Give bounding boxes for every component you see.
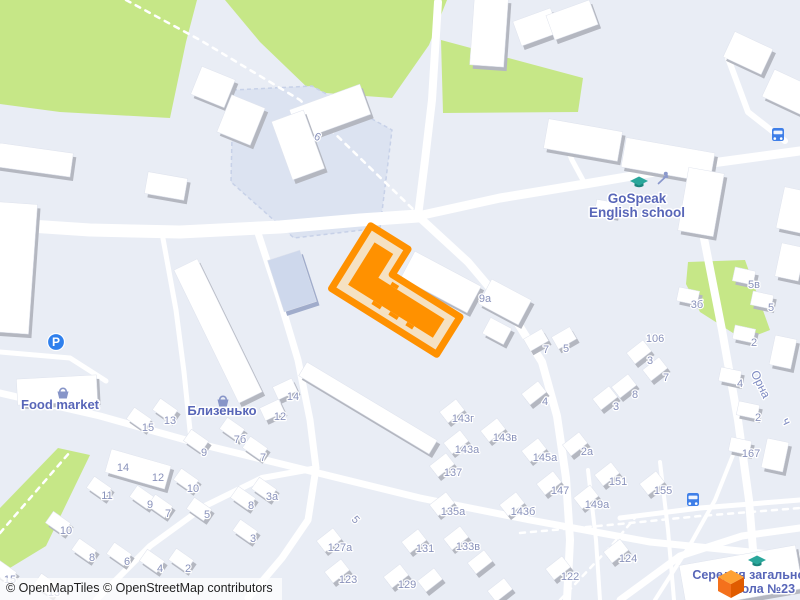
attribution-text[interactable]: © OpenMapTiles © OpenStreetMap contribut… bbox=[6, 581, 273, 595]
house-number-label: 3 bbox=[250, 533, 256, 545]
house-number-label: 2 bbox=[755, 412, 761, 424]
house-number-label: 13 bbox=[164, 415, 176, 427]
house-number-label: 10 bbox=[60, 525, 72, 537]
house-number-label: 149а bbox=[585, 499, 610, 511]
house-number-label: 143г bbox=[452, 413, 474, 425]
house-number-label: 5 bbox=[563, 343, 569, 355]
house-number-label: 4 bbox=[542, 396, 548, 408]
house-number-label: 10 bbox=[187, 483, 199, 495]
house-number-label: 137 bbox=[444, 467, 462, 479]
house-number-label: 3 bbox=[647, 355, 653, 367]
house-number-label: 4 bbox=[157, 563, 163, 575]
house-number-label: 5в bbox=[748, 279, 760, 291]
house-number-label: 6 bbox=[124, 556, 130, 568]
house-number-label: 5 bbox=[768, 302, 774, 314]
house-number-label: 9 bbox=[147, 499, 153, 511]
house-number-label: 9 bbox=[201, 447, 207, 459]
house bbox=[776, 187, 800, 233]
green-area bbox=[225, 0, 447, 98]
green-area bbox=[441, 40, 583, 113]
house bbox=[467, 550, 492, 574]
building bbox=[543, 119, 622, 162]
house-number-label: 127а bbox=[328, 542, 353, 554]
house-number-label: 3б bbox=[691, 299, 703, 311]
house-number-label: 7 bbox=[663, 372, 669, 384]
house-number-label: 2 bbox=[185, 563, 191, 575]
house bbox=[775, 243, 800, 281]
labels: 69а75106378343б5в5242167143г143в143а1371… bbox=[4, 131, 800, 599]
poi-label-gospeak: English school bbox=[589, 205, 685, 220]
house-number-label: 5 bbox=[349, 514, 362, 527]
house-number-label: 11 bbox=[101, 490, 112, 502]
house-number-label: 5 bbox=[204, 509, 210, 521]
parking-icon: P bbox=[48, 334, 65, 351]
house-number-label: 7б bbox=[234, 434, 246, 446]
house-number-label: 7 bbox=[260, 452, 266, 464]
house-number-label: 7 bbox=[543, 344, 549, 356]
house-number-label: 106 bbox=[646, 333, 664, 345]
svg-text:P: P bbox=[52, 335, 60, 349]
street-name-label: Орна bbox=[748, 368, 774, 401]
house-number-label: 123 bbox=[339, 574, 357, 586]
house-number-label: 2а bbox=[581, 446, 594, 458]
house-number-label: 4 bbox=[737, 378, 743, 390]
house-number-label: 3а bbox=[266, 491, 279, 503]
house-number-label: 14 bbox=[117, 462, 129, 474]
house-number-label: 12 bbox=[152, 472, 164, 484]
map-canvas[interactable]: 69а75106378343б5в5242167143г143в143а1371… bbox=[0, 0, 800, 600]
house-number-label: 15 bbox=[142, 422, 154, 434]
house-number-label: 122 bbox=[561, 571, 579, 583]
house bbox=[417, 568, 442, 592]
house-number-label: 151 bbox=[609, 476, 627, 488]
building bbox=[299, 362, 438, 454]
bus-stop-icon bbox=[687, 493, 699, 506]
poi-label-food-market: Food market bbox=[21, 397, 100, 412]
house-number-label: 3 bbox=[613, 401, 619, 413]
attribution-bar[interactable]: © OpenMapTiles © OpenStreetMap contribut… bbox=[0, 578, 282, 600]
house-number-label: 135а bbox=[441, 506, 466, 518]
house-number-label: 131 bbox=[416, 543, 434, 555]
house-number-label: 143а bbox=[455, 444, 480, 456]
house-number-label: 8 bbox=[632, 389, 638, 401]
building bbox=[762, 69, 800, 116]
building bbox=[470, 0, 509, 67]
house-number-label: 167 bbox=[742, 448, 760, 460]
house-number-label: 14 bbox=[287, 391, 299, 403]
green-area bbox=[0, 0, 197, 118]
house-number-label: 9а bbox=[479, 293, 492, 305]
house-number-label: 8 bbox=[248, 500, 254, 512]
house-number-label: 155 bbox=[654, 485, 672, 497]
house-number-label: 133в bbox=[456, 541, 480, 553]
house-number-label: 147 bbox=[551, 485, 569, 497]
house-number-label: 145а bbox=[533, 452, 558, 464]
shop-basket-icon bbox=[218, 396, 229, 406]
street-name-label: ч bbox=[779, 415, 794, 427]
house-number-label: 2 bbox=[751, 337, 757, 349]
house-number-label: 143б bbox=[511, 506, 536, 518]
map-viewport[interactable]: 69а75106378343б5в5242167143г143в143а1371… bbox=[0, 0, 800, 600]
house-number-label: 8 bbox=[89, 552, 95, 564]
house-number-label: 129 bbox=[398, 579, 416, 591]
building-blue bbox=[267, 250, 316, 312]
house-number-label: 143в bbox=[493, 432, 517, 444]
bus-stop-icon bbox=[772, 128, 784, 141]
house-number-label: 124 bbox=[619, 553, 637, 565]
house-number-label: 7 bbox=[165, 508, 171, 520]
building bbox=[546, 0, 598, 40]
poi-label-school23: Середня загальноосвітня bbox=[692, 568, 800, 582]
house-number-label: 12 bbox=[274, 411, 286, 423]
poi-label-gospeak: GoSpeak bbox=[608, 191, 667, 206]
